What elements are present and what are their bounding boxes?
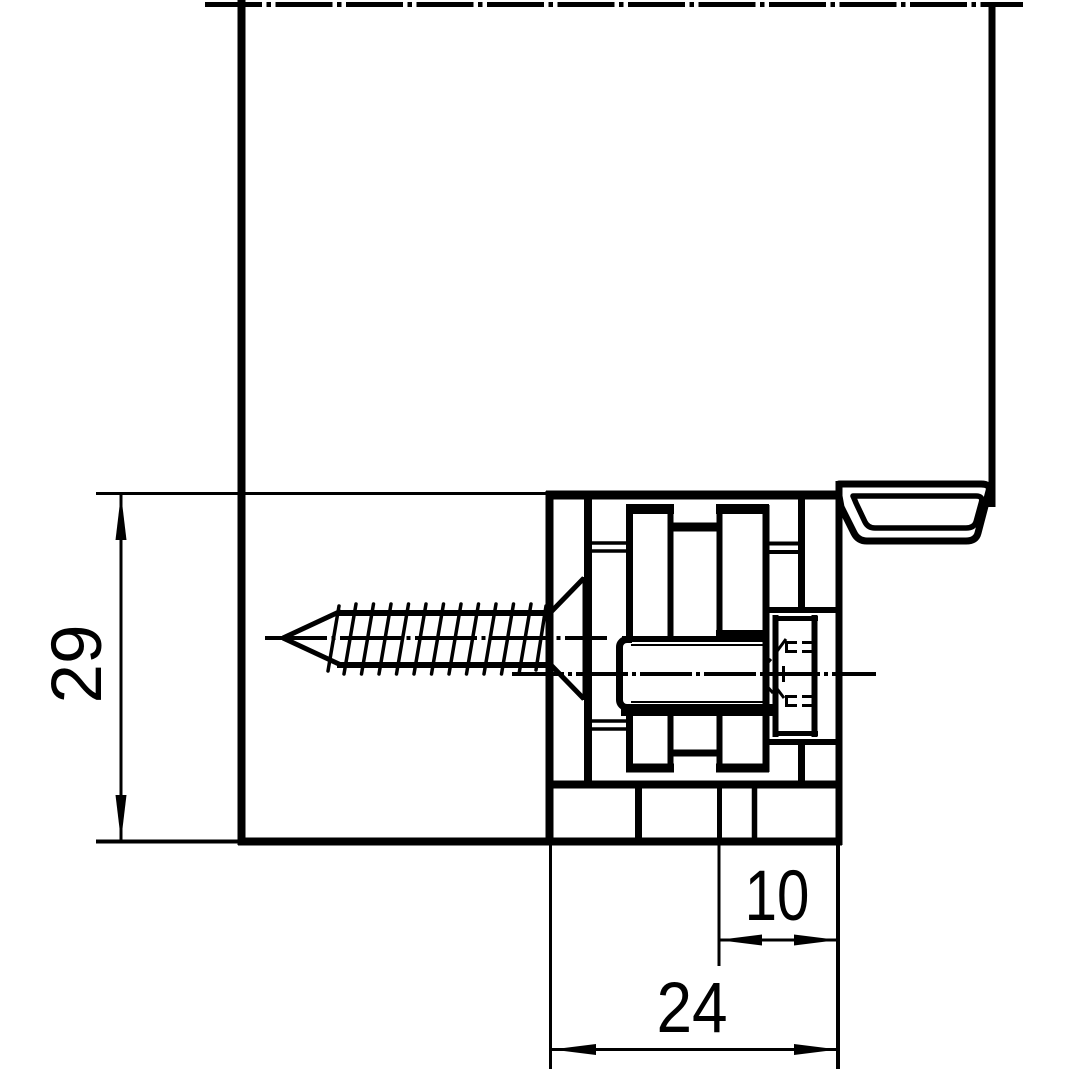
svg-text:29: 29 bbox=[38, 625, 117, 704]
svg-text:10: 10 bbox=[745, 855, 810, 935]
svg-text:24: 24 bbox=[656, 969, 727, 1048]
